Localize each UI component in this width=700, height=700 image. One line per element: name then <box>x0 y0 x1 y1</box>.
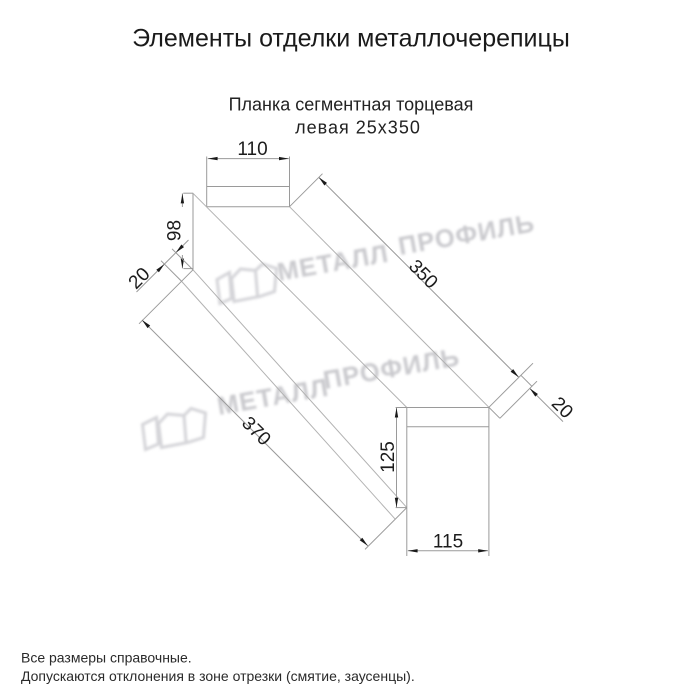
svg-text:Все размеры справочные.: Все размеры справочные. <box>21 650 192 666</box>
svg-text:110: 110 <box>237 139 267 160</box>
svg-text:левая 25х350: левая 25х350 <box>295 118 421 138</box>
svg-text:98: 98 <box>165 220 186 241</box>
svg-text:370: 370 <box>237 413 274 450</box>
svg-text:Допускаются отклонения в зоне: Допускаются отклонения в зоне отрезки (с… <box>21 668 415 684</box>
svg-text:ПРОФИЛЬ: ПРОФИЛЬ <box>321 343 462 395</box>
svg-text:20: 20 <box>125 264 155 294</box>
svg-text:ПРОФИЛЬ: ПРОФИЛЬ <box>396 209 537 261</box>
svg-text:115: 115 <box>433 532 463 553</box>
svg-text:350: 350 <box>404 256 441 293</box>
svg-text:125: 125 <box>378 441 399 473</box>
svg-text:Элементы отделки металлочерепи: Элементы отделки металлочерепицы <box>132 25 570 53</box>
svg-text:МЕТАЛЛ: МЕТАЛЛ <box>215 374 331 421</box>
svg-text:20: 20 <box>547 393 577 423</box>
svg-text:МЕТАЛЛ: МЕТАЛЛ <box>275 240 391 287</box>
svg-text:Планка сегментная торцевая: Планка сегментная торцевая <box>229 95 474 115</box>
